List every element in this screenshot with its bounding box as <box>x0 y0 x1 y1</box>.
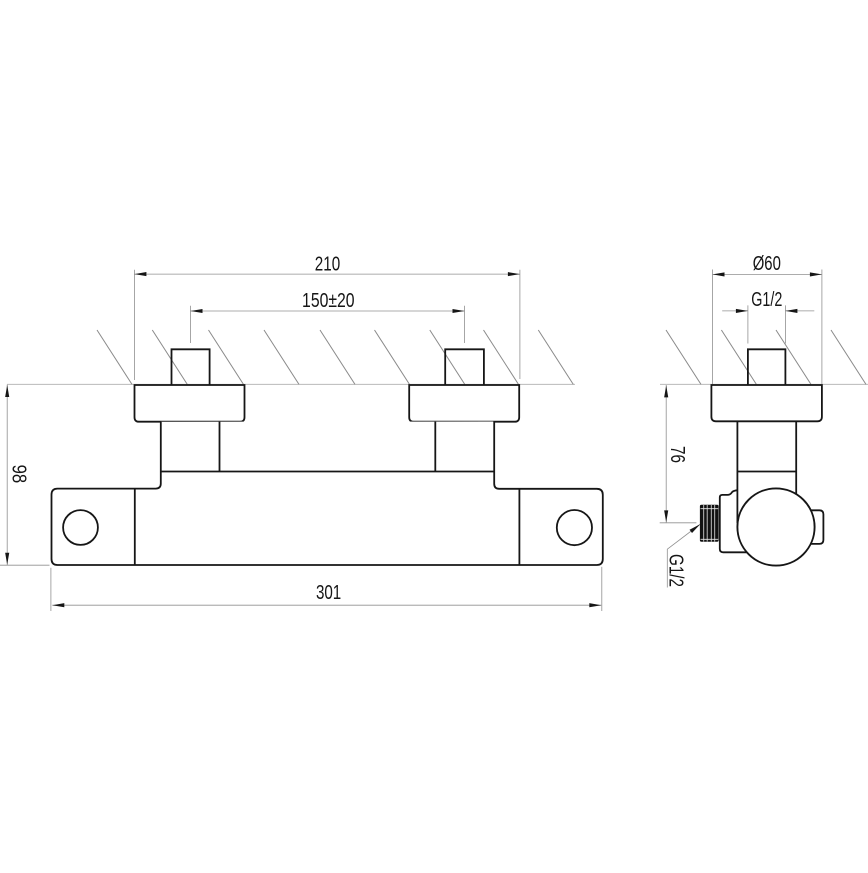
svg-text:76: 76 <box>666 446 688 463</box>
svg-text:G1/2: G1/2 <box>751 289 782 311</box>
svg-text:98: 98 <box>7 465 29 484</box>
svg-text:210: 210 <box>315 254 340 276</box>
svg-text:301: 301 <box>316 582 341 604</box>
svg-text:150±20: 150±20 <box>302 290 355 312</box>
svg-text:G1/2: G1/2 <box>665 554 687 587</box>
svg-text:Ø60: Ø60 <box>753 253 781 275</box>
